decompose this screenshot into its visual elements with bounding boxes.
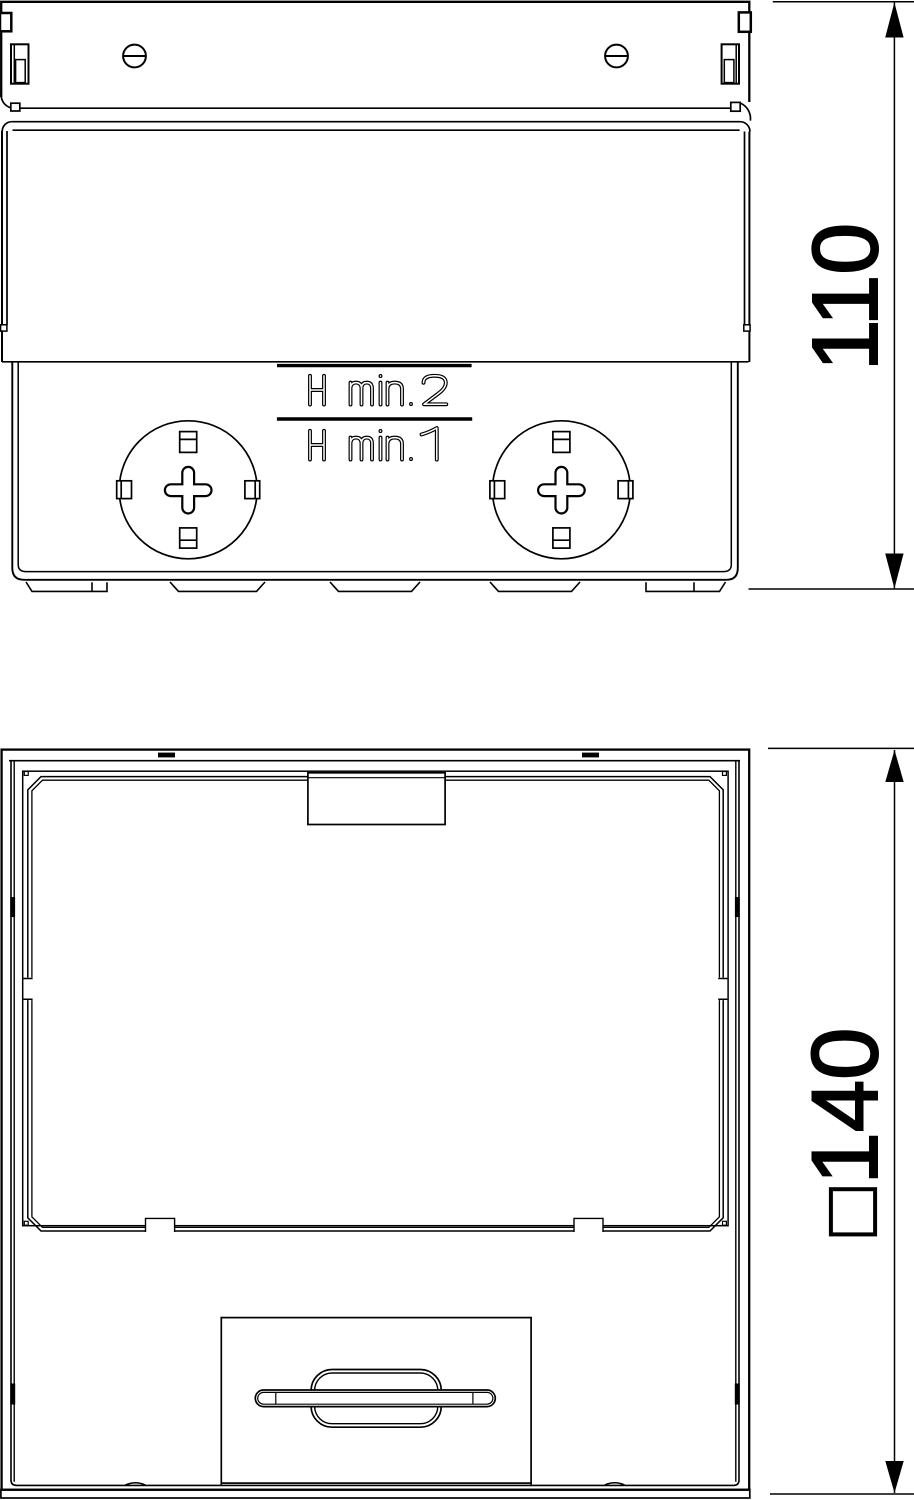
svg-text:140: 140: [792, 1028, 897, 1185]
svg-text:110: 110: [793, 223, 897, 371]
